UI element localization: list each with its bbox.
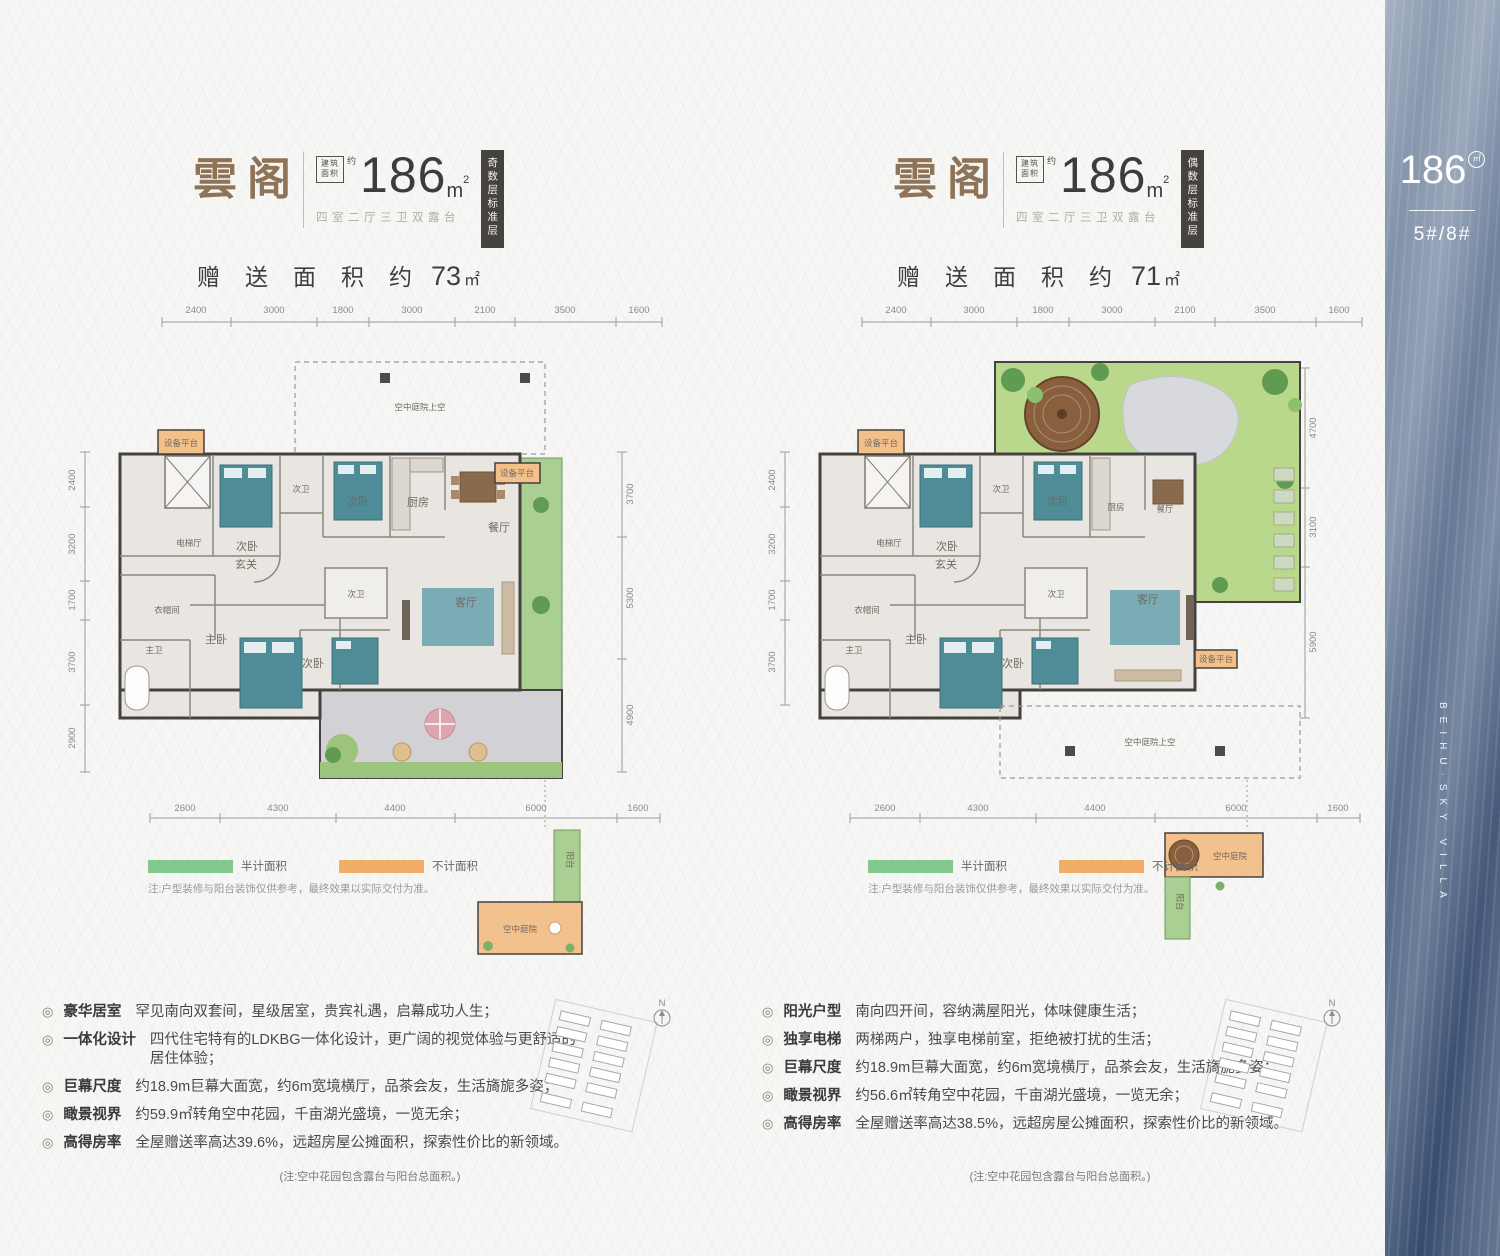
paver (1274, 556, 1294, 569)
layout-subtitle: 四室二厅三卫双露台 (316, 209, 469, 225)
bonus-area-row: 赠送面积约 73 ㎡ (193, 258, 493, 292)
tv-console (1186, 595, 1194, 640)
dim-label: 4400 (1084, 803, 1105, 814)
sidebar: 186㎡ 5#/8# 湖境·学府一雲墅 BEIHU·SKY VILLA (1385, 0, 1500, 1256)
room-label: 次卧 (1047, 494, 1069, 508)
legend-excluded-label: 不计面积 (1152, 858, 1198, 874)
feature-desc: 约59.9㎡转角空中花园，千亩湖光盛境，一览无余； (135, 1106, 468, 1125)
floor-type-badge: 奇数层标准层 (481, 150, 504, 248)
approx-label: 约 (347, 154, 356, 167)
dim-label: 2400 (885, 305, 906, 316)
dim-label: 1600 (1327, 803, 1348, 814)
bathtub-icon (125, 666, 149, 710)
bullet-icon: ◎ (42, 1002, 53, 1021)
legend-note: 注:户型装修与阳台装饰仅供参考，最终效果以实际交付为准。 (868, 881, 1318, 896)
legend-half-label: 半计面积 (241, 858, 287, 874)
dim-label: 1700 (67, 589, 78, 610)
room-label: 次卧 (1002, 656, 1024, 670)
room-label: 客厅 (1137, 592, 1159, 606)
room-label: 设备平台 (864, 438, 898, 448)
approx-label: 约 (1047, 154, 1056, 167)
floor-type-badge: 偶数层标准层 (1181, 150, 1204, 248)
left-feature-list: ◎豪华居室罕见南向双套间，星级居室，贵宾礼遇，启幕成功人生； ◎一体化设计四代住… (42, 1002, 587, 1161)
room-label: 次卧 (936, 539, 958, 553)
dim-label: 3000 (1101, 305, 1122, 316)
bullet-icon: ◎ (762, 1002, 773, 1021)
dim-label: 2100 (1174, 305, 1195, 316)
left-legend: 半计面积 不计面积 注:户型装修与阳台装饰仅供参考，最终效果以实际交付为准。 (148, 858, 598, 896)
feature-item: ◎巨幕尺度约18.9m巨幕大面宽，约6m宽境横厅，品茶会友，生活旖旎多姿； (42, 1077, 587, 1097)
feature-desc: 约18.9m巨幕大面宽，约6m宽境横厅，品茶会友，生活旖旎多姿； (135, 1078, 558, 1097)
dim-label: 1800 (1032, 305, 1053, 316)
sidebar-slogan: 湖境·学府一雲墅 (1429, 352, 1500, 692)
dim-label: 3500 (1254, 305, 1275, 316)
room-label: 次卫 (1047, 589, 1065, 599)
feature-desc: 约56.6㎡转角空中花园，千亩湖光盛境，一览无余； (855, 1087, 1188, 1106)
tree-icon (1091, 363, 1109, 381)
feature-title: 阳光户型 (783, 1003, 841, 1022)
tree-icon (1027, 387, 1043, 403)
dim-label: 3100 (1308, 516, 1319, 537)
paver (1274, 490, 1294, 503)
bullet-icon: ◎ (762, 1086, 773, 1105)
bullet-icon: ◎ (762, 1030, 773, 1049)
kitchen-counter (392, 458, 410, 530)
feature-item: ◎豪华居室罕见南向双套间，星级居室，贵宾礼遇，启幕成功人生； (42, 1002, 587, 1022)
room-label: 衣帽间 (854, 605, 880, 615)
dim-label: 3700 (625, 483, 636, 504)
tree-icon (532, 596, 550, 614)
legend-note: 注:户型装修与阳台装饰仅供参考，最终效果以实际交付为准。 (148, 881, 598, 896)
void-label: 空中庭院上空 (394, 402, 445, 412)
bonus-value: 71 (1131, 261, 1161, 292)
dim-label: 4300 (967, 803, 988, 814)
room-label: 主卫 (845, 645, 863, 655)
area-value: 186 (360, 150, 446, 200)
feature-desc: 罕见南向双套间，星级居室，贵宾礼遇，启幕成功人生； (135, 1003, 498, 1022)
area-label-box: 建筑面积 (316, 156, 344, 183)
feature-title: 巨幕尺度 (783, 1059, 841, 1078)
bonus-area-row: 赠送面积约 71 ㎡ (893, 258, 1193, 292)
room-label: 主卫 (145, 645, 163, 655)
table-icon (549, 922, 561, 934)
right-legend: 半计面积 不计面积 注:户型装修与阳台装饰仅供参考，最终效果以实际交付为准。 (868, 858, 1318, 896)
dim-label: 2900 (67, 727, 78, 748)
feature-desc: 南向四开间，容纳满屋阳光，体味健康生活； (855, 1003, 1145, 1022)
dim-label: 2400 (67, 469, 78, 490)
feature-title: 豪华居室 (63, 1003, 121, 1022)
tree-icon (566, 944, 575, 953)
sidebar-buildings: 5#/8# (1385, 224, 1500, 246)
room-label: 次卧 (302, 656, 324, 670)
legend-half-swatch (148, 860, 233, 873)
room-label: 厨房 (407, 496, 429, 509)
area-unit: m2 (1146, 174, 1169, 203)
feature-desc: 两梯两户，独享电梯前室，拒绝被打扰的生活； (855, 1031, 1160, 1050)
room-label: 次卧 (347, 494, 369, 508)
feature-title: 瞰景视界 (63, 1106, 121, 1125)
legend-half-label: 半计面积 (961, 858, 1007, 874)
room-label: 餐厅 (488, 520, 510, 534)
tree-icon (1212, 577, 1228, 593)
room-label: 次卫 (347, 589, 365, 599)
bullet-icon: ◎ (762, 1058, 773, 1077)
feature-desc: 全屋赠送率高达39.6%，远超房屋公摊面积，探索性价比的新领域。 (135, 1134, 568, 1153)
dim-label: 2600 (174, 803, 195, 814)
kitchen-counter (410, 458, 443, 472)
room-label: 厨房 (1107, 502, 1124, 512)
room-label: 客厅 (455, 595, 477, 609)
bullet-icon: ◎ (42, 1030, 53, 1049)
room-label: 电梯厅 (176, 538, 202, 548)
inset-terrace-label: 空中庭院 (503, 924, 538, 934)
bullet-icon: ◎ (762, 1114, 773, 1133)
dim-label: 1600 (627, 803, 648, 814)
dim-label: 4900 (625, 704, 636, 725)
feature-item: ◎一体化设计四代住宅特有的LDKBG一体化设计，更广阔的视觉体验与更舒适的居住体… (42, 1030, 587, 1069)
feature-title: 瞰景视界 (783, 1087, 841, 1106)
dim-label: 3700 (67, 651, 78, 672)
column-dot (1215, 746, 1225, 756)
dim-label: 2600 (874, 803, 895, 814)
dim-label: 6000 (525, 803, 546, 814)
bonus-value: 73 (431, 261, 461, 292)
room-label: 餐厅 (1156, 504, 1174, 514)
tv-console (402, 600, 410, 640)
dim-label: 3200 (67, 533, 78, 554)
stone-path (1123, 376, 1238, 465)
tree-icon (1288, 398, 1302, 412)
column-dot (520, 373, 530, 383)
dim-label: 1800 (332, 305, 353, 316)
kitchen-counter (1092, 458, 1110, 530)
dim-label: 3200 (767, 533, 778, 554)
compass-label: N (1329, 998, 1336, 1009)
room-label: 设备平台 (500, 468, 534, 478)
dim-label: 4700 (1308, 417, 1319, 438)
layout-subtitle: 四室二厅三卫双露台 (1016, 209, 1169, 225)
dim-label: 4400 (384, 803, 405, 814)
dim-label: 6000 (1225, 803, 1246, 814)
chair-icon (393, 743, 411, 761)
feature-title: 一体化设计 (63, 1031, 136, 1050)
legend-excluded-swatch (339, 860, 424, 873)
room-label: 次卧 (236, 539, 258, 553)
divider (1003, 152, 1004, 228)
bullet-icon: ◎ (42, 1077, 53, 1096)
sidebar-divider (1409, 210, 1475, 211)
dim-label: 3000 (263, 305, 284, 316)
compass-icon: N (654, 998, 670, 1026)
paver (1274, 468, 1294, 481)
feature-item: ◎高得房率全屋赠送率高达39.6%，远超房屋公摊面积，探索性价比的新领域。 (42, 1133, 587, 1153)
sidebar-area-unit: ㎡ (1468, 151, 1485, 168)
feature-item: ◎瞰景视界约59.9㎡转角空中花园，千亩湖光盛境，一览无余； (42, 1105, 587, 1125)
divider (303, 152, 304, 228)
brochure-page: 雲阁 建筑面积 约 186 m2 四室二厅三卫双露台 奇数层标准层 赠送面积约 … (0, 0, 1500, 1256)
sofa (502, 582, 514, 654)
dim-label: 1600 (628, 305, 649, 316)
feature-title: 高得房率 (783, 1115, 841, 1134)
dim-label: 3500 (554, 305, 575, 316)
area-label-box: 建筑面积 (1016, 156, 1044, 183)
dim-label: 5300 (625, 587, 636, 608)
room-label: 电梯厅 (876, 538, 902, 548)
sidebar-area: 186㎡ (1385, 148, 1500, 193)
paver (1274, 512, 1294, 525)
left-title-block: 雲阁 建筑面积 约 186 m2 四室二厅三卫双露台 奇数层标准层 赠送面积约 … (193, 146, 493, 292)
inset-balcony-label: 阳台 (1175, 893, 1185, 910)
bonus-unit: ㎡ (1164, 266, 1180, 290)
dim-label: 2100 (474, 305, 495, 316)
tree-icon (533, 497, 549, 513)
room-label: 主卧 (905, 633, 927, 646)
room-label: 玄关 (935, 557, 957, 571)
bullet-icon: ◎ (42, 1105, 53, 1124)
column-dot (380, 373, 390, 383)
room-label: 次卫 (992, 484, 1010, 494)
dining-table (460, 472, 496, 502)
room-label: 玄关 (235, 557, 257, 571)
right-footnote: (注:空中花园包含露台与阳台总面积。) (900, 1168, 1220, 1184)
room-label: 衣帽间 (154, 605, 180, 615)
compass-label: N (659, 998, 666, 1009)
compass-icon: N (1324, 998, 1340, 1026)
page-title: 雲阁 (893, 146, 1001, 214)
column-dot (1065, 746, 1075, 756)
bonus-label: 赠送面积约 (897, 258, 1137, 292)
legend-half-swatch (868, 860, 953, 873)
chair-icon (469, 743, 487, 761)
tree-icon (325, 747, 341, 763)
dim-label: 2400 (767, 469, 778, 490)
dining-table (1153, 480, 1183, 504)
left-footnote: (注:空中花园包含露台与阳台总面积。) (210, 1168, 530, 1184)
tree-icon (1001, 368, 1025, 392)
tree-icon (1262, 369, 1288, 395)
dim-label: 2400 (185, 305, 206, 316)
page-title: 雲阁 (193, 146, 301, 214)
dim-label: 3000 (401, 305, 422, 316)
void-label: 空中庭院上空 (1124, 737, 1175, 747)
area-unit: m2 (446, 174, 469, 203)
dim-label: 3700 (767, 651, 778, 672)
feature-title: 独享电梯 (783, 1031, 841, 1050)
bonus-unit: ㎡ (464, 266, 480, 290)
paver (1274, 534, 1294, 547)
sidebar-slogan-en: BEIHU·SKY VILLA (1437, 702, 1448, 1122)
bathtub-icon (825, 666, 849, 710)
room-label: 主卧 (205, 633, 227, 646)
room-label: 设备平台 (1199, 654, 1233, 664)
dim-label: 3000 (963, 305, 984, 316)
room-label: 次卫 (292, 484, 310, 494)
legend-excluded-label: 不计面积 (432, 858, 478, 874)
dim-label: 1700 (767, 589, 778, 610)
feature-title: 巨幕尺度 (63, 1078, 121, 1097)
sofa (1115, 670, 1181, 681)
terrace-garden-edge (320, 762, 562, 778)
legend-excluded-swatch (1059, 860, 1144, 873)
bullet-icon: ◎ (42, 1133, 53, 1152)
dim-label: 5900 (1308, 631, 1319, 652)
dim-label: 1600 (1328, 305, 1349, 316)
right-title-block: 雲阁 建筑面积 约 186 m2 四室二厅三卫双露台 偶数层标准层 赠送面积约 … (893, 146, 1193, 292)
area-value: 186 (1060, 150, 1146, 200)
room-label: 设备平台 (164, 438, 198, 448)
paver (1274, 578, 1294, 591)
feature-title: 高得房率 (63, 1134, 121, 1153)
tree-icon (483, 941, 493, 951)
dim-label: 4300 (267, 803, 288, 814)
bonus-label: 赠送面积约 (197, 258, 437, 292)
left-site-plan: N (520, 988, 690, 1163)
right-site-plan: N (1190, 988, 1360, 1163)
